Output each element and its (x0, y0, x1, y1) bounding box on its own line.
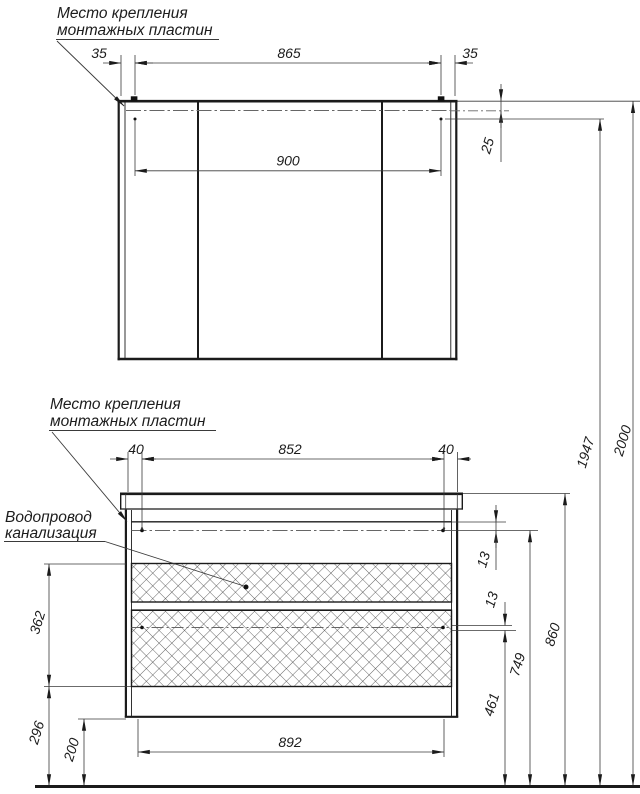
leader-endpoint (244, 585, 249, 590)
dim-mirror-mount-height-value: 1947 (573, 434, 598, 470)
dim-vanity-span-value: 852 (278, 441, 302, 457)
dim-total-height-value: 2000 (610, 423, 635, 459)
dim-vanity-bottom-span-value: 892 (278, 734, 302, 750)
dim-lower-mount-height-value: 461 (480, 691, 502, 718)
dim-floor-clearance-value: 200 (60, 736, 82, 764)
drawing-page: 35 865 35 900 25 (0, 0, 640, 794)
annotation-text: Место крепления (50, 396, 181, 413)
annotation-text: Место крепления (57, 5, 188, 22)
drawer-front-upper-hatch (132, 564, 452, 603)
mirror-cabinet-outline (118, 100, 458, 360)
dim-mirror-top (103, 55, 473, 96)
dim-right-stack (445, 101, 633, 786)
mounting-plate-mark (140, 626, 144, 630)
dim-countertop-height-value: 860 (541, 621, 563, 648)
dim-mirror-offset-left-value: 35 (91, 45, 107, 61)
annotation-mirror-mount: Место крепления монтажных пластин (56, 5, 219, 106)
dim-lower-zone-value: 296 (25, 719, 47, 747)
dim-gap-top (452, 505, 539, 570)
dim-vanity-offset-left-value: 40 (128, 441, 144, 457)
dim-mirror-mount-span-value: 900 (276, 153, 300, 169)
dim-mirror-span-value: 865 (277, 45, 301, 61)
vanity-mounting-line-upper (132, 529, 452, 533)
mounting-plate-mark (131, 96, 138, 101)
vanity-drawers (132, 564, 452, 687)
annotation-text: канализация (5, 525, 97, 542)
dim-mirror-offset-right-value: 35 (462, 45, 478, 61)
dim-vanity-top (110, 452, 471, 530)
vanity-countertop (120, 493, 463, 510)
annotation-text: монтажных пластин (50, 413, 206, 430)
dim-gap-top-value: 13 (473, 550, 493, 570)
dim-drawer-zone-value: 362 (26, 609, 48, 636)
mounting-plate-mark (441, 626, 445, 630)
dim-gap-mid-value: 13 (481, 590, 501, 610)
annotation-text: монтажных пластин (57, 22, 213, 39)
dim-vanity-offset-right-value: 40 (438, 441, 454, 457)
dim-left-stack (44, 564, 131, 786)
drawer-front-lower-hatch (132, 610, 452, 686)
technical-drawing: 35 865 35 900 25 (0, 0, 640, 794)
mounting-plate-mark (438, 96, 445, 101)
dim-mirror-top-gap-value: 25 (477, 136, 497, 157)
annotation-text: Водопровод (5, 509, 92, 526)
dim-upper-mount-height-value: 749 (506, 651, 528, 678)
